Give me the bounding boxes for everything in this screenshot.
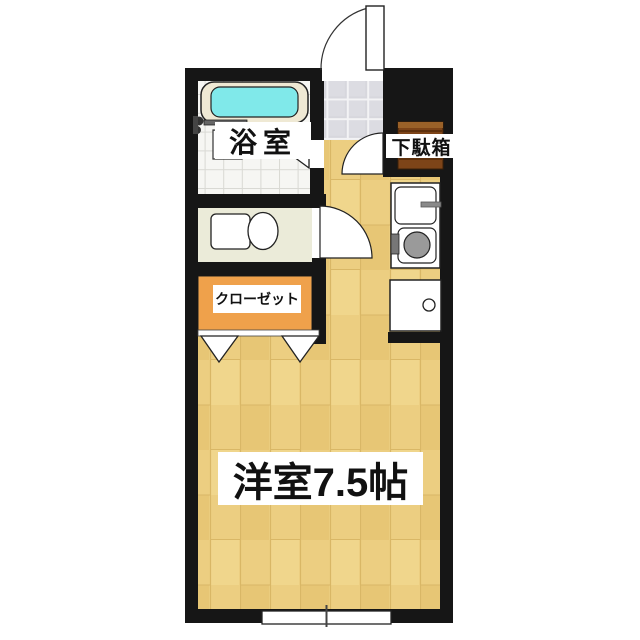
floorplan-canvas: 浴室 下駄箱 クローゼット 洋室7.5帖 — [0, 0, 640, 640]
faucet-icon — [421, 202, 441, 207]
stove-burner-icon — [404, 232, 430, 258]
closet-label: クローゼット — [213, 285, 301, 313]
main-room-label: 洋室7.5帖 — [218, 452, 423, 505]
entrance-door-icon — [321, 6, 384, 70]
bathtub-icon — [201, 82, 308, 123]
kitchen-counter — [391, 183, 441, 268]
kitchen-cabinet-icon — [390, 280, 441, 331]
shoe-cabinet-label: 下駄箱 — [386, 134, 457, 158]
entry-tile-floor — [322, 68, 383, 140]
toilet-icon — [211, 213, 278, 250]
floorplan-drawing — [0, 0, 640, 640]
bathroom-label: 浴室 — [215, 122, 311, 159]
